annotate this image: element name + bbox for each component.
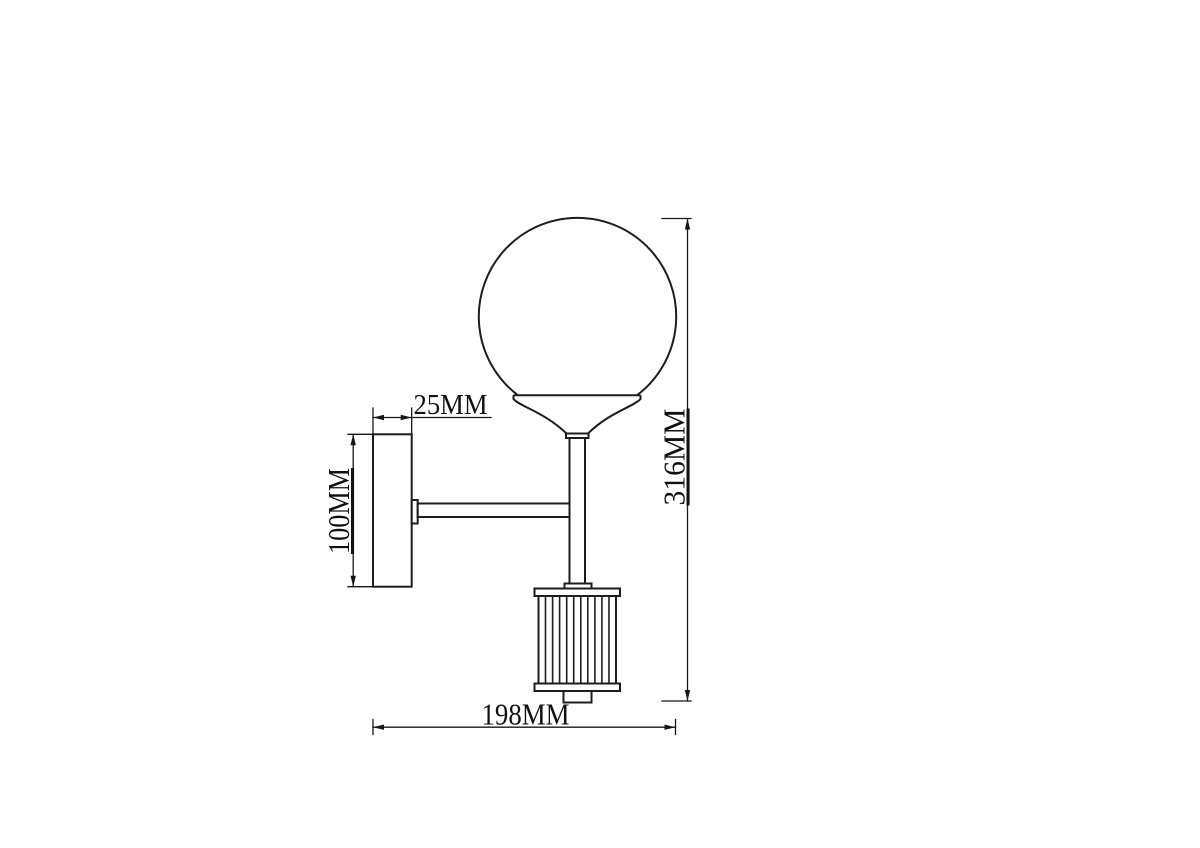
- arrow-right: [665, 725, 676, 730]
- wall-plate: [373, 434, 412, 586]
- globe-outline: [479, 218, 676, 395]
- dim-label-plate-depth: 25MM: [414, 389, 488, 421]
- wall-mount: [373, 434, 570, 586]
- dimension-plate-depth: 25MM: [373, 389, 491, 433]
- shade-top-rim: [535, 589, 621, 597]
- dim-label-overall-height: 316MM: [657, 409, 692, 506]
- arrow-down: [351, 576, 356, 587]
- arrow-up: [351, 434, 356, 445]
- arrow-down: [685, 690, 690, 701]
- globe-neck-left: [514, 395, 567, 433]
- bottom-shade: [535, 589, 621, 703]
- shade-bottom-rim: [535, 684, 621, 692]
- arm: [418, 504, 570, 518]
- wall-lamp-dimension-diagram: 25MM 100MM 316MM 198MM: [0, 0, 1200, 848]
- dim-label-projection: 198MM: [482, 697, 570, 732]
- dimension-overall-height: 316MM: [657, 219, 692, 702]
- arrow-left: [373, 415, 384, 420]
- arrow-left: [373, 725, 384, 730]
- shade-body: [539, 596, 617, 684]
- stem: [570, 438, 586, 584]
- dim-label-plate-height: 100MM: [321, 468, 356, 554]
- globe-shade: [479, 218, 676, 438]
- dimension-projection: 198MM: [373, 697, 676, 735]
- shade-ribs: [546, 596, 610, 684]
- globe-neck-right: [588, 395, 641, 433]
- arrow-right: [401, 415, 412, 420]
- drawing-canvas: 25MM 100MM 316MM 198MM: [0, 0, 1200, 848]
- arrow-up: [685, 219, 690, 230]
- dimension-plate-height: 100MM: [321, 434, 373, 586]
